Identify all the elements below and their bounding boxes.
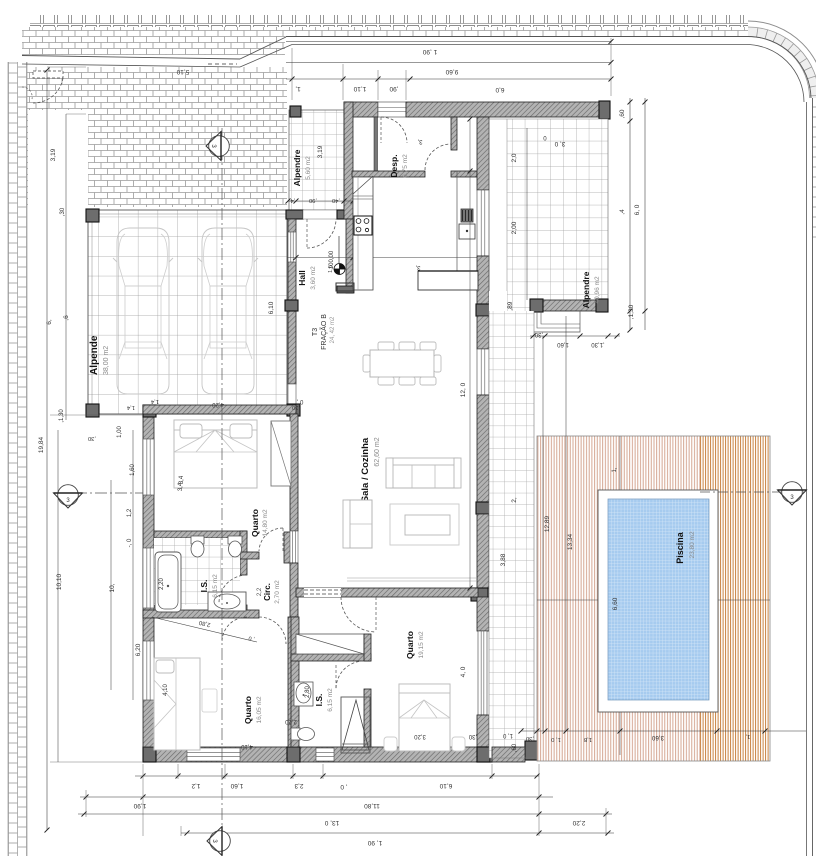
svg-text:1,90: 1,90 xyxy=(133,802,146,809)
svg-text:Alpende: Alpende xyxy=(89,335,100,375)
svg-text:1,4: 1,4 xyxy=(150,398,159,404)
svg-text:I.S.: I.S. xyxy=(314,694,324,707)
svg-text:2,0: 2,0 xyxy=(511,153,518,162)
svg-text:Desp.: Desp. xyxy=(389,154,399,177)
svg-text:1,60: 1,60 xyxy=(230,782,243,789)
svg-text:Sala / Cozinha: Sala / Cozinha xyxy=(360,437,371,502)
svg-text:3,20: 3,20 xyxy=(414,733,426,739)
svg-text:1, 0: 1, 0 xyxy=(551,736,561,742)
svg-text:16,05 m2: 16,05 m2 xyxy=(256,696,263,723)
svg-text:I.S.: I.S. xyxy=(199,580,209,593)
svg-text:1,8: 1,8 xyxy=(584,736,592,742)
svg-text:10,10: 10,10 xyxy=(56,573,63,590)
svg-text:,4: ,4 xyxy=(290,197,296,203)
svg-text:, 0: , 0 xyxy=(340,783,348,790)
svg-text:13, 0: 13, 0 xyxy=(324,819,339,826)
svg-text:Quarto: Quarto xyxy=(243,696,253,724)
svg-text:FRAÇÃO B: FRAÇÃO B xyxy=(319,314,328,350)
svg-text:1,4: 1,4 xyxy=(126,404,135,410)
svg-text:2,70 m2: 2,70 m2 xyxy=(274,580,281,604)
svg-text:3,4: 3,4 xyxy=(179,475,185,484)
svg-text:24, 42 m2: 24, 42 m2 xyxy=(330,316,336,343)
svg-text:14,80 m2: 14,80 m2 xyxy=(262,509,269,536)
svg-text:2,20: 2,20 xyxy=(159,578,165,590)
svg-text:3,19: 3,19 xyxy=(317,145,324,158)
svg-text:1,2: 1,2 xyxy=(191,782,200,789)
svg-text:4, 0: 4, 0 xyxy=(460,666,467,677)
svg-text:Alpendre: Alpendre xyxy=(581,271,591,308)
svg-text:,4: ,4 xyxy=(619,209,626,215)
svg-text:4,10: 4,10 xyxy=(163,684,169,696)
svg-text:1,: 1, xyxy=(745,733,750,739)
svg-text:9,60: 9,60 xyxy=(445,68,458,75)
svg-text:6,10: 6,10 xyxy=(439,782,452,789)
svg-text:3, 0: 3, 0 xyxy=(554,140,565,147)
svg-text:,60: ,60 xyxy=(619,109,626,118)
svg-text:38,00 m2: 38,00 m2 xyxy=(103,346,110,375)
svg-text:1, 0: 1, 0 xyxy=(502,732,513,738)
svg-text:,90: ,90 xyxy=(309,197,317,203)
svg-text:62,60 m2: 62,60 m2 xyxy=(374,437,381,466)
svg-text:2,3: 2,3 xyxy=(294,782,303,789)
svg-text:13,34: 13,34 xyxy=(567,533,574,550)
svg-text:Quarto: Quarto xyxy=(250,509,260,537)
svg-text:Quarto: Quarto xyxy=(405,631,415,659)
svg-text:,30: ,30 xyxy=(526,735,534,741)
svg-text:3,88: 3,88 xyxy=(500,553,507,566)
svg-text:,30: ,30 xyxy=(88,435,96,441)
svg-text:2,20: 2,20 xyxy=(285,718,297,724)
svg-text:1,60: 1,60 xyxy=(130,464,136,476)
svg-text:1,2: 1,2 xyxy=(127,508,133,517)
svg-text:6,15 m2: 6,15 m2 xyxy=(212,574,219,598)
svg-text:T3: T3 xyxy=(312,328,319,336)
svg-text:6,0: 6,0 xyxy=(495,86,504,93)
svg-text:,40: ,40 xyxy=(332,197,340,203)
svg-text:5,60 m2: 5,60 m2 xyxy=(305,156,312,180)
svg-text:1,60: 1,60 xyxy=(557,341,569,347)
svg-text:Piscina: Piscina xyxy=(675,531,685,564)
svg-text:100,00: 100,00 xyxy=(329,250,335,269)
svg-text:3,60 m2: 3,60 m2 xyxy=(310,266,317,290)
svg-text:,30: ,30 xyxy=(468,733,477,739)
svg-text:0 ,: 0 , xyxy=(296,398,303,404)
svg-text:1,10: 1,10 xyxy=(353,85,366,92)
svg-text:,6: ,6 xyxy=(63,315,70,321)
svg-text:Hall: Hall xyxy=(297,270,307,286)
svg-text:12, 0: 12, 0 xyxy=(460,382,467,397)
svg-text:3,: 3, xyxy=(415,264,420,270)
svg-text:3,: 3, xyxy=(417,138,422,144)
svg-text:,90: ,90 xyxy=(389,85,398,92)
svg-text:1,: 1, xyxy=(295,85,301,92)
svg-text:2,: 2, xyxy=(511,497,518,503)
svg-text:6,: 6, xyxy=(46,319,53,325)
svg-text:,1,30: ,1,30 xyxy=(591,341,605,347)
svg-text:19,15 m2: 19,15 m2 xyxy=(418,631,425,658)
svg-text:-, 0: -, 0 xyxy=(127,538,133,547)
svg-text:6, 0: 6, 0 xyxy=(634,204,641,215)
svg-text:1 ,90: 1 ,90 xyxy=(422,48,437,55)
svg-text:6,60: 6,60 xyxy=(612,597,619,610)
svg-text:19,84: 19,84 xyxy=(38,436,45,453)
svg-text:4,10: 4,10 xyxy=(241,743,253,749)
svg-text:2,20: 2,20 xyxy=(572,819,585,826)
svg-text:6,75 m2: 6,75 m2 xyxy=(402,154,409,178)
svg-text:Circ.: Circ. xyxy=(263,583,272,601)
svg-text:Alpendre: Alpendre xyxy=(292,149,302,186)
svg-text:11,80: 11,80 xyxy=(364,802,380,809)
svg-text:23,80 m2: 23,80 m2 xyxy=(689,531,696,558)
svg-text:,30: ,30 xyxy=(292,404,300,410)
svg-text:1, 90: 1, 90 xyxy=(367,839,382,846)
svg-text:1,: 1, xyxy=(612,467,618,472)
svg-text:,60: ,60 xyxy=(512,743,518,752)
svg-text:2,00: 2,00 xyxy=(511,221,518,234)
svg-text:12,89: 12,89 xyxy=(544,515,551,532)
svg-text:,1,30: ,1,30 xyxy=(59,409,65,423)
svg-text:6,10: 6,10 xyxy=(268,301,275,314)
svg-text:10,: 10, xyxy=(109,583,116,592)
svg-text:,30: ,30 xyxy=(60,207,66,216)
svg-text:,30: ,30 xyxy=(534,331,543,337)
svg-text:6,20: 6,20 xyxy=(135,643,142,656)
svg-text:3,60: 3,60 xyxy=(651,734,664,741)
svg-text:1,00: 1,00 xyxy=(117,426,123,438)
svg-text:,1,30: ,1,30 xyxy=(628,304,635,319)
svg-text:3,19: 3,19 xyxy=(50,148,57,161)
svg-text:2,80: 2,80 xyxy=(305,686,311,698)
svg-text:40,96 m2: 40,96 m2 xyxy=(594,276,601,303)
svg-text:5,10: 5,10 xyxy=(176,68,189,75)
svg-text:6,15 m2: 6,15 m2 xyxy=(327,688,334,712)
